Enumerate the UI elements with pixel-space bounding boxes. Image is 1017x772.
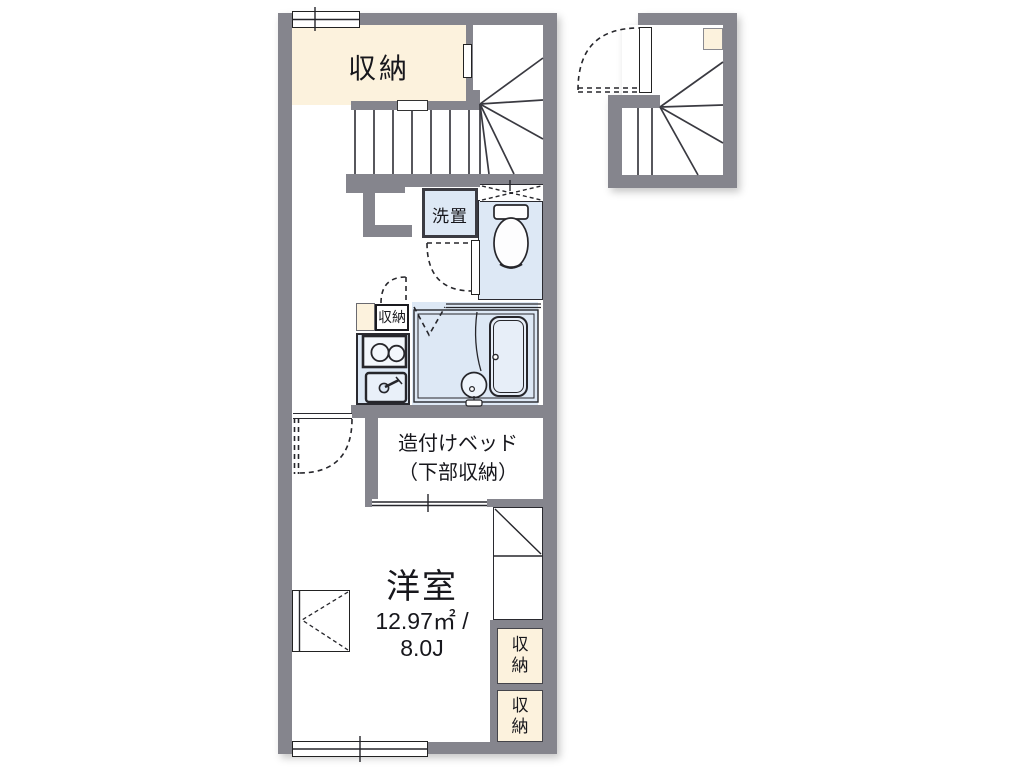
stairwell-door-leaf xyxy=(639,27,652,93)
closet-upper-text: 収納 xyxy=(511,635,529,676)
floor-plan: 収納 洗置 収納 造付けベッド （下部収納） 洋室 12.97㎡ / 8.0J … xyxy=(0,0,1017,772)
toilet-window xyxy=(480,184,543,202)
bed-label-line1: 造付けベッド xyxy=(375,430,541,459)
room-label: 洋室 12.97㎡ / 8.0J xyxy=(348,566,496,662)
stairwell-wall-right xyxy=(723,13,737,188)
closet-lower-label: 収納 xyxy=(497,696,543,737)
kitchen-storage-label: 収納 xyxy=(375,304,409,331)
stairwell-wall-jut xyxy=(608,95,660,108)
stairwell-wall-bottom xyxy=(608,175,737,188)
casement-window xyxy=(292,590,350,652)
toilet-door-leaf xyxy=(471,240,480,295)
washer-label: 洗置 xyxy=(422,202,478,227)
stair-top-opening xyxy=(397,100,428,111)
room-area-m2: 12.97㎡ / xyxy=(348,608,496,635)
hall-opening-lintel xyxy=(293,413,352,419)
stairwell-wall-left xyxy=(608,95,622,188)
stairwell-storage-cream xyxy=(703,28,723,50)
storage-top-label: 収納 xyxy=(292,47,466,87)
closet-lower-text: 収納 xyxy=(511,696,529,737)
top-window xyxy=(292,11,360,28)
bed-window xyxy=(372,499,487,507)
bedroom-closet xyxy=(493,507,543,620)
closet-upper-label: 収納 xyxy=(497,635,543,676)
bed-label-line2: （下部収納） xyxy=(375,459,541,488)
bottom-window xyxy=(292,741,428,757)
room-name: 洋室 xyxy=(348,566,496,608)
room-area-jo: 8.0J xyxy=(348,635,496,662)
built-in-bed-label: 造付けベッド （下部収納） xyxy=(375,430,541,488)
